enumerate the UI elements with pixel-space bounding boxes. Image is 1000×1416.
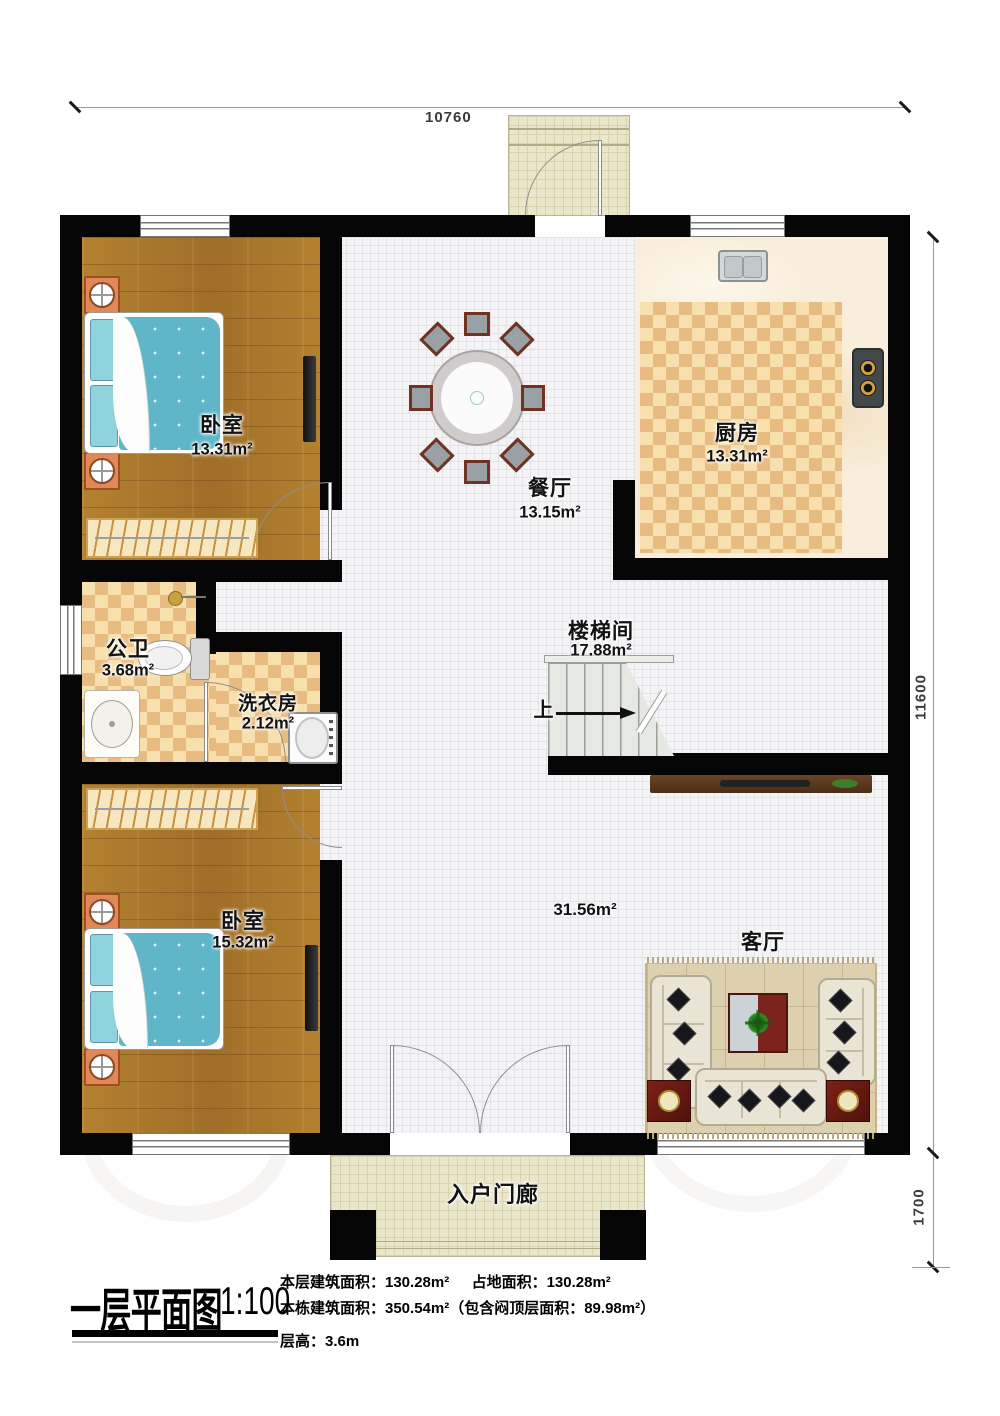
wall-segment: [60, 215, 140, 237]
wall-segment: [570, 1133, 657, 1155]
wall-segment: [548, 753, 910, 775]
bed: [84, 928, 224, 1050]
wardrobe: [86, 788, 258, 830]
living-name: 客厅: [741, 926, 785, 956]
laundry-area: 2.12m²: [242, 715, 294, 734]
wall-segment: [82, 560, 342, 582]
living-area: 31.56m²: [553, 900, 616, 920]
window: [140, 215, 230, 237]
console-table: [650, 775, 872, 793]
stairwell-name: 楼梯间: [568, 615, 634, 645]
wall-segment: [320, 860, 342, 1133]
porch-column: [330, 1210, 376, 1260]
title-underline-thin: [72, 1341, 278, 1343]
wall-segment: [605, 215, 690, 237]
wall-segment: [613, 558, 910, 580]
stats-line3: 层高：3.6m: [280, 1330, 359, 1351]
wall-segment: [290, 1133, 390, 1155]
dimension-ext: [912, 1267, 950, 1268]
wardrobe: [86, 518, 258, 558]
side-table: [826, 1080, 870, 1122]
kitchen-sink: [718, 250, 768, 282]
kitchen-name: 厨房: [715, 417, 759, 447]
wall-segment: [60, 675, 82, 1155]
stats-line2: 本栋建筑面积：350.54m²（包含闷顶层面积：89.98m²）: [280, 1297, 655, 1318]
title-underline-thick: [72, 1330, 278, 1337]
window: [60, 605, 82, 675]
kitchen-area: 13.31m²: [706, 448, 767, 467]
stats-footprint-area: 占地面积：130.28m²: [472, 1274, 611, 1291]
lamp-icon: [89, 458, 115, 484]
window: [690, 215, 785, 237]
lamp-icon: [89, 1054, 115, 1080]
bedroom2-area: 15.32m²: [212, 934, 273, 953]
stairs-direction-arrow: [556, 707, 640, 721]
wall-segment: [785, 215, 910, 237]
stairwell-area: 17.88m²: [570, 642, 631, 661]
bathroom-area: 3.68m²: [102, 662, 154, 681]
washing-machine: [288, 712, 338, 764]
coffee-table: [728, 993, 788, 1053]
lamp-icon: [89, 899, 115, 925]
stats-floor-area: 本层建筑面积：130.28m²: [280, 1274, 449, 1291]
dimension-right-lower-label: 1700: [911, 1188, 928, 1225]
dimension-top-label: 10760: [425, 109, 472, 126]
laundry-name: 洗衣房: [238, 689, 298, 716]
wall-segment: [888, 237, 910, 1133]
nightstand: [84, 893, 120, 931]
bedroom2-name: 卧室: [221, 905, 265, 935]
dining-name: 餐厅: [528, 472, 572, 502]
sofa-right: [818, 978, 876, 1086]
floor-plan-canvas: 10760 11600 1700: [0, 0, 1000, 1416]
bathroom-name: 公卫: [106, 633, 150, 663]
window: [132, 1133, 290, 1155]
stove: [852, 348, 884, 408]
stairs-up-label: 上: [534, 694, 555, 723]
entry-porch-label: 入户门廊: [447, 1177, 539, 1209]
nightstand: [84, 1048, 120, 1086]
nightstand: [84, 452, 120, 490]
tv: [303, 356, 316, 442]
stats-line1: 本层建筑面积：130.28m² 占地面积：130.28m²: [280, 1271, 611, 1292]
porch-column: [600, 1210, 646, 1260]
dimension-line-right: [933, 237, 934, 1267]
wall-segment: [82, 762, 342, 784]
wall-segment: [320, 762, 342, 784]
dimension-right-label: 11600: [913, 674, 930, 720]
bedroom1-name: 卧室: [200, 409, 244, 439]
nightstand: [84, 276, 120, 314]
side-table: [647, 1080, 691, 1122]
wall-segment: [60, 237, 82, 605]
sofa-bottom: [695, 1068, 827, 1126]
wall-segment: [230, 215, 535, 237]
tv: [305, 945, 318, 1031]
lamp-icon: [89, 282, 115, 308]
bedroom1-area: 13.31m²: [191, 441, 252, 460]
wall-segment: [320, 237, 342, 510]
bathroom-sink: [84, 690, 140, 758]
wall-segment: [60, 1133, 132, 1155]
shower-head: [168, 590, 206, 600]
dimension-line-top: [75, 107, 905, 108]
dining-area: 13.15m²: [519, 504, 580, 523]
